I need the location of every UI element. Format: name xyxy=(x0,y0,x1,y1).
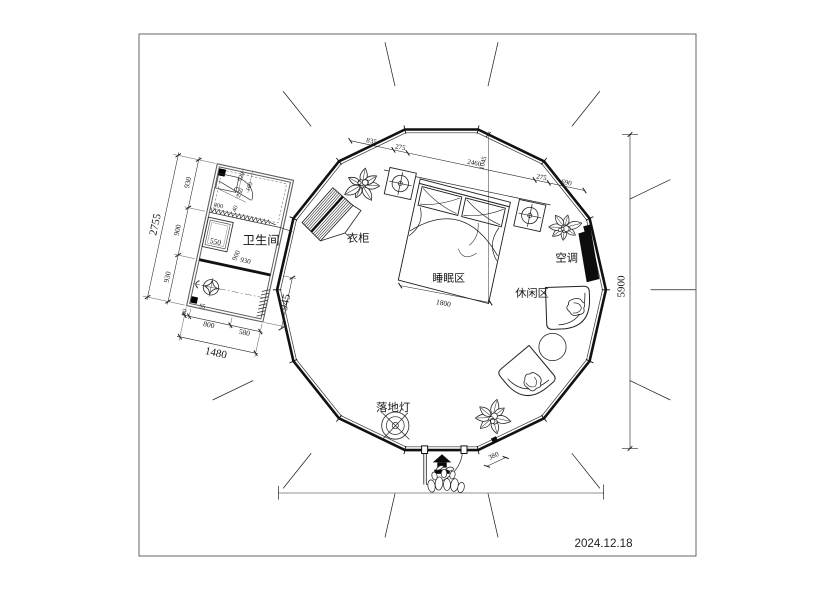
svg-text:5900: 5900 xyxy=(616,275,628,298)
svg-text:95: 95 xyxy=(199,303,206,310)
svg-text:2024.12.18: 2024.12.18 xyxy=(575,537,633,550)
